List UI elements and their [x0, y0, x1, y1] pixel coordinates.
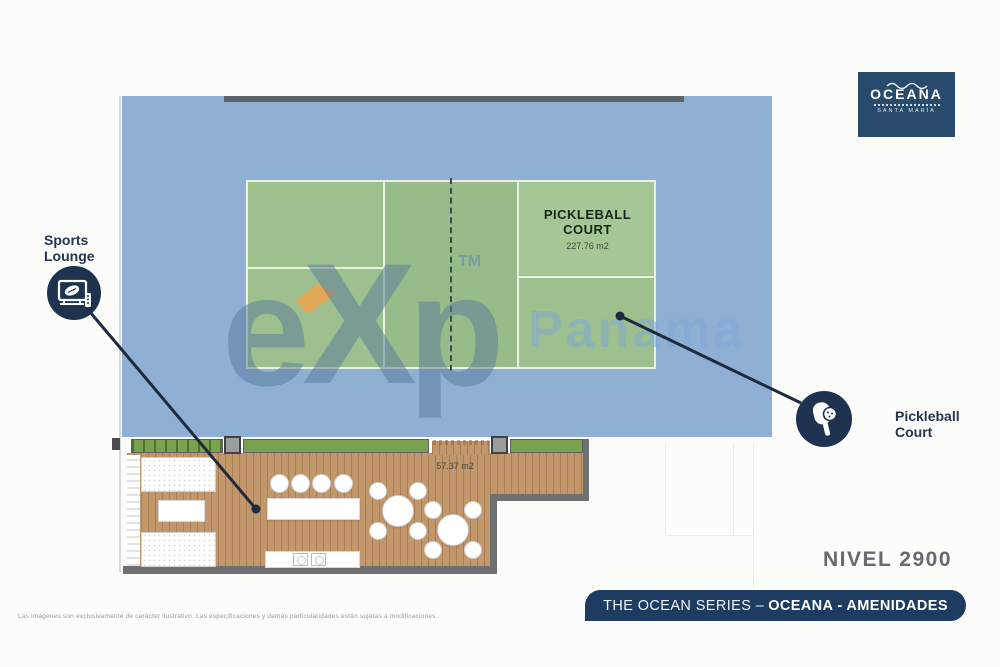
oceana-logo: OCEANA SANTA MARÍA	[858, 72, 955, 137]
logo-name: OCEANA	[858, 87, 955, 101]
tv-football-icon	[47, 266, 101, 320]
pickleball-label-line1: Pickleball	[895, 408, 985, 424]
logo-divider	[874, 104, 940, 106]
banner-series-text: THE OCEAN SERIES –	[603, 598, 764, 614]
footer-banner: THE OCEAN SERIES – OCEANA - AMENIDADES	[585, 590, 966, 621]
sports-lounge-label-line2: Lounge	[44, 248, 134, 264]
pickleball-label-line2: Court	[895, 424, 985, 440]
pickleball-label: Pickleball Court	[895, 408, 985, 440]
sports-lounge-icon	[47, 266, 101, 320]
leader-line-pickleball	[620, 316, 801, 403]
banner-highlight-text: OCEANA - AMENIDADES	[768, 598, 948, 614]
leader-line-sports-lounge	[90, 312, 256, 509]
paddle-ball-icon	[796, 391, 852, 447]
logo-location: SANTA MARÍA	[858, 108, 955, 114]
leader-dot-pickleball	[616, 312, 625, 321]
floorplan-page: PICKLEBALL COURT 227.76 m2 e X p TM Pana…	[0, 0, 1000, 667]
sports-lounge-label: Sports Lounge	[44, 232, 134, 264]
sports-lounge-label-line1: Sports	[44, 232, 134, 248]
disclaimer-text: Las imágenes son exclusivamente de carác…	[18, 613, 438, 620]
leader-dot-sports-lounge	[252, 505, 261, 514]
pickleball-icon	[796, 391, 852, 447]
level-label: NIVEL 2900	[770, 548, 952, 572]
